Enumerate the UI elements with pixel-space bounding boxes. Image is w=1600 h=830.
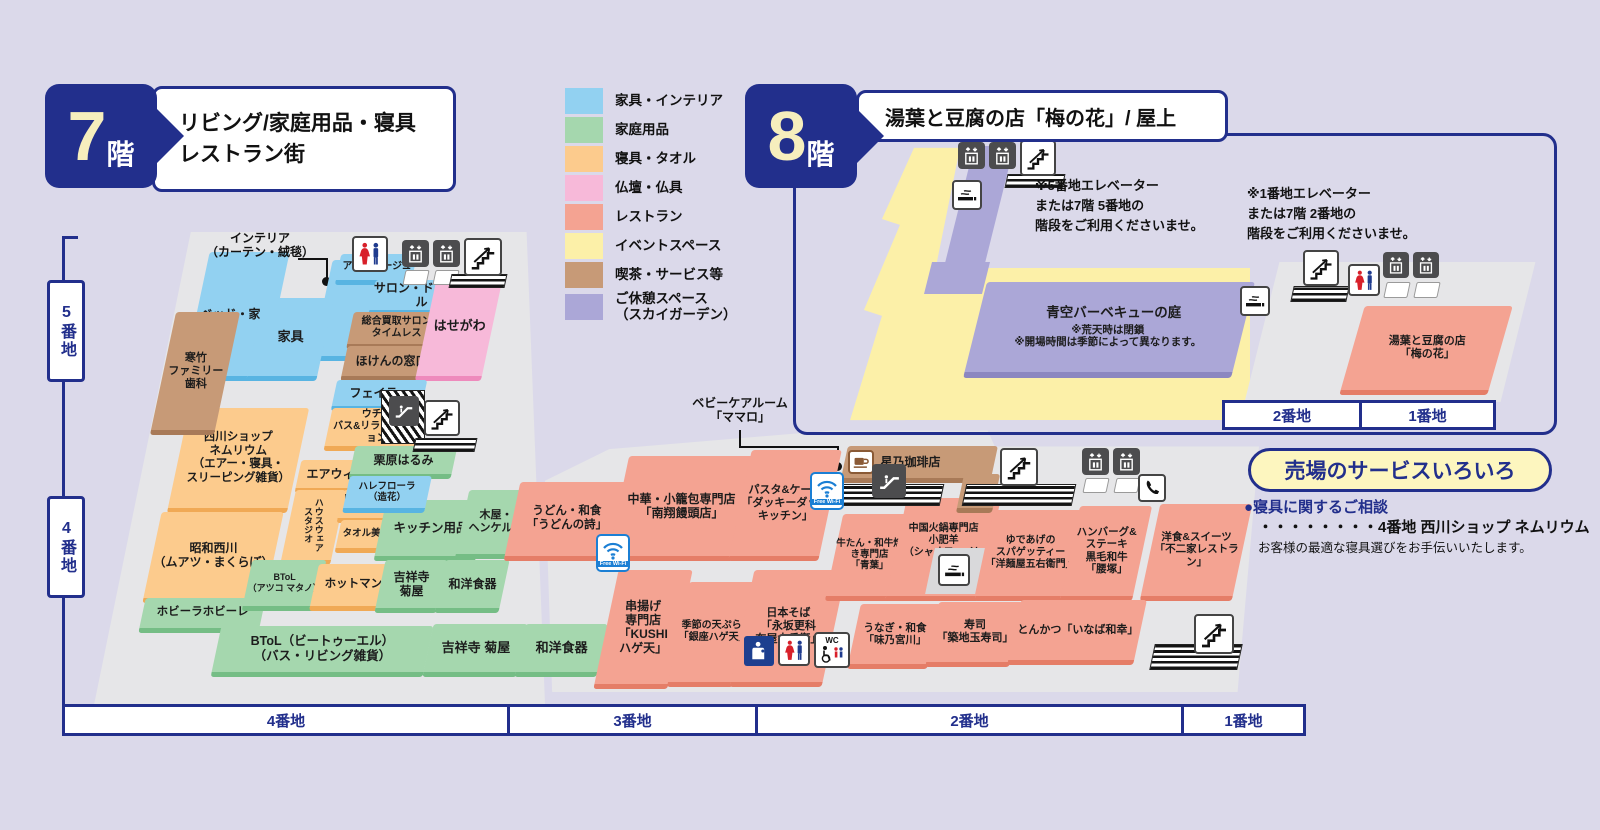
legend-swatch-furniture xyxy=(565,88,603,114)
legend-swatch-restaurant xyxy=(565,204,603,230)
legend-swatch-cafe xyxy=(565,262,603,288)
floor8-suffix: 階 xyxy=(806,133,834,173)
label-interior-curtain: インテリア （カーテン・絨毯） xyxy=(190,231,330,260)
stairs-icon xyxy=(1194,614,1234,654)
service-consult-detail: お客様の最適な寝具選びをお手伝いいたします。 xyxy=(1258,537,1532,556)
legend-item: 家庭用品 xyxy=(565,117,669,143)
stairs-icon xyxy=(1020,140,1056,176)
smoking-icon xyxy=(938,554,970,586)
escalator-icon xyxy=(872,464,906,498)
stairs-icon xyxy=(1303,250,1339,286)
baby-care-icon xyxy=(744,636,774,666)
zone-4banchi-label: 4番地 xyxy=(47,496,85,598)
zone-4banchi: 4番地 xyxy=(65,707,507,733)
floor7-suffix: 階 xyxy=(106,133,134,173)
legend-swatch-rest-space xyxy=(565,294,603,320)
shop-wayo-shokki: 和洋食器 xyxy=(434,560,509,613)
elevator-icon xyxy=(1113,448,1140,475)
legend-swatch-bedding xyxy=(565,146,603,172)
phone-icon xyxy=(1138,474,1166,502)
bbq-garden-notes: ※荒天時は閉鎖 ※開場時間は季節によって異なります。 xyxy=(1014,324,1201,349)
legend-item: 喫茶・サービス等 xyxy=(565,262,723,288)
note-1banchi-elevator: ※1番地エレベーター または7階 2番地の 階段をご利用くださいませ。 xyxy=(1247,184,1416,244)
legend-item: レストラン xyxy=(565,204,683,230)
service-consult-location: ・・・・・・・・4番地 西川ショップ ネムリウム xyxy=(1258,516,1590,537)
coffee-icon xyxy=(848,450,874,474)
elevator-icon xyxy=(1413,252,1439,278)
shop-umenohana: 湯葉と豆腐の店 「梅の花」 xyxy=(1339,306,1513,395)
floor8-zone-bar: 2番地 1番地 xyxy=(1222,400,1496,430)
shop-hale-flora: ハレフローラ （造花） xyxy=(342,476,432,513)
zone-2banchi: 2番地 xyxy=(755,707,1181,733)
floor7-zone-bar: 4番地 3番地 2番地 1番地 xyxy=(62,704,1306,736)
legend-item: イベントスペース xyxy=(565,233,721,259)
zone-1banchi: 1番地 xyxy=(1359,403,1493,427)
elevator-icon xyxy=(402,240,429,267)
elevator-landing-pad xyxy=(1082,478,1109,493)
legend-item: 仏壇・仏具 xyxy=(565,175,683,201)
stairs-landing-stripes xyxy=(449,274,508,288)
floor7-title: リビング/家庭用品・寝具 レストラン街 xyxy=(152,86,456,192)
legend-item: 寝具・タオル xyxy=(565,146,696,172)
label-baby-care-room: ベビーケアルーム 「ママロ」 xyxy=(640,396,840,425)
shop-bbq-garden: 青空バーベキューの庭 ※荒天時は閉鎖 ※開場時間は季節によって異なります。 xyxy=(963,282,1255,378)
restaurant-inaba-wako: とんかつ「いなば和幸」 xyxy=(1007,600,1147,665)
elevator-icon xyxy=(1082,448,1109,475)
free-wifi-icon: Free Wi-Fi xyxy=(810,472,844,510)
floor8-sky-garden-path xyxy=(924,262,990,294)
stairs-landing-stripes xyxy=(413,438,478,452)
elevator-landing-pad xyxy=(1383,282,1410,298)
escalator-icon xyxy=(389,396,419,426)
floor7-badge: 7階 xyxy=(45,84,157,188)
zone-1banchi: 1番地 xyxy=(1181,707,1303,733)
legend-swatch-event xyxy=(565,233,603,259)
shop-kichijoji-kikuya-2: 吉祥寺 菊屋 xyxy=(422,624,527,677)
elevator-icon xyxy=(1383,252,1409,278)
service-consult-heading: ●寝具に関するご相談 xyxy=(1244,496,1388,517)
stairs-icon xyxy=(424,400,460,436)
floor8-title: 湯葉と豆腐の店「梅の花」/ 屋上 xyxy=(856,90,1228,142)
bbq-garden-title: 青空バーベキューの庭 xyxy=(1046,305,1181,321)
stairs-landing-stripes xyxy=(1290,286,1349,302)
legend-item: ご休憩スペース （スカイガーデン） xyxy=(565,291,737,322)
elevator-landing-pad xyxy=(402,270,429,285)
floor8-badge: 8階 xyxy=(745,84,857,188)
restroom-icon xyxy=(352,236,388,272)
floor7-number: 7 xyxy=(68,101,107,171)
zone-bracket-tick xyxy=(62,236,78,239)
smoking-icon xyxy=(952,180,982,210)
restroom-icon xyxy=(1348,264,1380,296)
elevator-landing-pad xyxy=(1413,282,1440,298)
shop-btol-bath-living: BToL（ビートゥーエル） （バス・リビング雑貨） xyxy=(211,626,434,677)
free-wifi-icon: Free Wi-Fi xyxy=(596,534,630,572)
zone-3banchi: 3番地 xyxy=(507,707,755,733)
elevator-icon xyxy=(989,142,1016,169)
legend-item: 家具・インテリア xyxy=(565,88,723,114)
stairs-icon xyxy=(464,238,502,276)
accessible-wc-icon: WC xyxy=(814,632,850,668)
legend-swatch-altar xyxy=(565,175,603,201)
elevator-icon xyxy=(433,240,460,267)
smoking-icon xyxy=(1240,286,1270,316)
floor-map-page: 7階 リビング/家庭用品・寝具 レストラン街 家具・インテリア 家庭用品 寝具・… xyxy=(0,0,1600,830)
service-box-title: 売場のサービスいろいろ xyxy=(1248,448,1552,492)
zone-5banchi-label: 5番地 xyxy=(47,280,85,382)
connector-line xyxy=(739,446,839,448)
elevator-landing-pad xyxy=(1113,478,1140,493)
stairs-landing-stripes xyxy=(962,484,1077,506)
legend-swatch-household xyxy=(565,117,603,143)
zone-2banchi: 2番地 xyxy=(1225,403,1359,427)
shop-wayo-shokki-2: 和洋食器 xyxy=(514,624,607,677)
note-5banchi-elevator: ※5番地エレベーター または7階 5番地の 階段をご利用くださいませ。 xyxy=(1035,176,1204,236)
floor8-number: 8 xyxy=(768,101,807,171)
restroom-icon xyxy=(778,634,810,666)
stairs-icon xyxy=(1000,448,1038,486)
elevator-icon xyxy=(958,142,985,169)
